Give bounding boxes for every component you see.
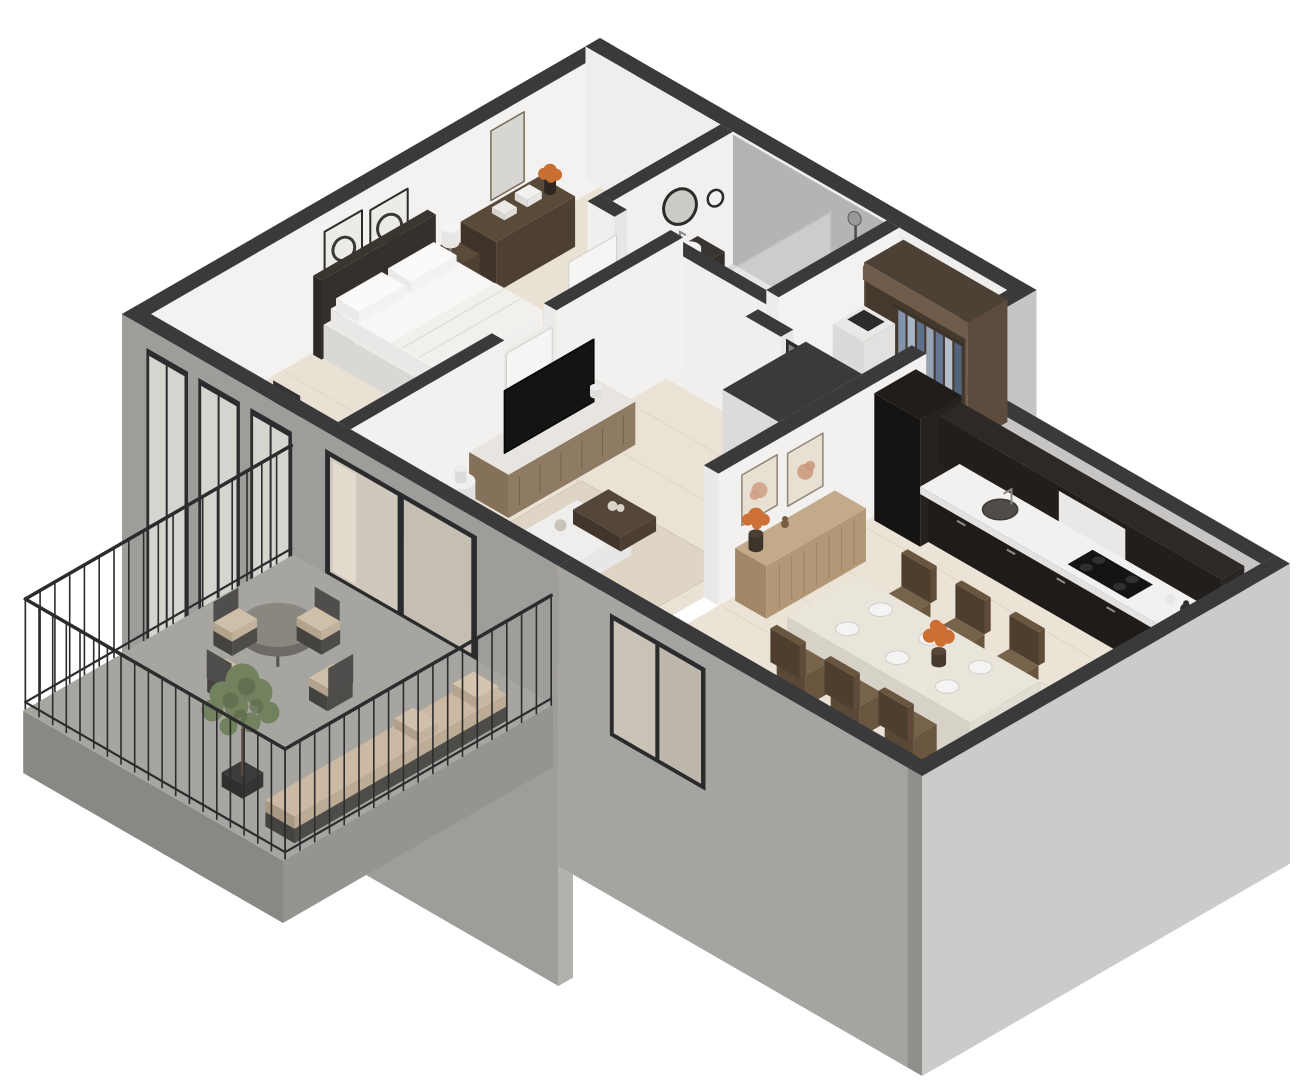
hanging-shirt-5 — [936, 331, 943, 388]
console-decor — [590, 384, 602, 399]
hanging-shirt-7 — [954, 342, 961, 399]
floorplan-3d-render — [0, 0, 1312, 1080]
place-setting-6 — [935, 680, 959, 694]
place-setting-1 — [869, 603, 893, 617]
burner-4 — [1113, 583, 1126, 591]
wing-door-pane-1 — [614, 621, 656, 758]
place-setting-5 — [885, 651, 909, 665]
place-setting-3 — [969, 661, 993, 675]
dining-vase — [931, 647, 946, 667]
side-table-lamp — [455, 465, 467, 483]
door-curtain — [333, 461, 356, 585]
burner-1 — [1092, 556, 1105, 564]
bedside-lamp — [442, 223, 460, 249]
burner-2 — [1126, 576, 1139, 584]
coffee-books — [555, 519, 567, 531]
place-setting-4 — [836, 622, 860, 636]
hanging-shirt-4 — [926, 326, 933, 383]
hanging-shirt-6 — [945, 337, 952, 394]
wing-door-pane-2 — [659, 647, 701, 784]
counter-jar — [1166, 594, 1176, 604]
floorplan-stage — [0, 0, 1312, 1080]
burner-3 — [1080, 564, 1093, 572]
sideboard-vase — [749, 529, 764, 552]
